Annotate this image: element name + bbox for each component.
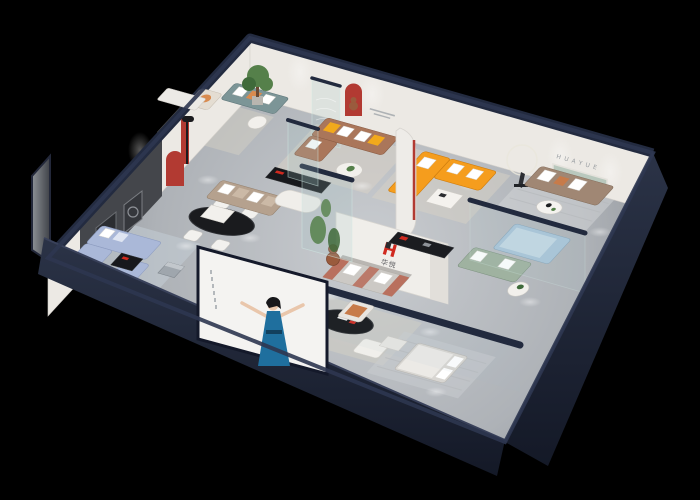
entry-glass-panel [288,120,318,186]
isometric-scene: HUAYUE [0,0,700,500]
showroom-render: HUAYUE [0,0,700,500]
curved-partition-wall [396,128,416,238]
red-arch-niche-top [345,84,362,117]
dress-belt [266,330,282,334]
